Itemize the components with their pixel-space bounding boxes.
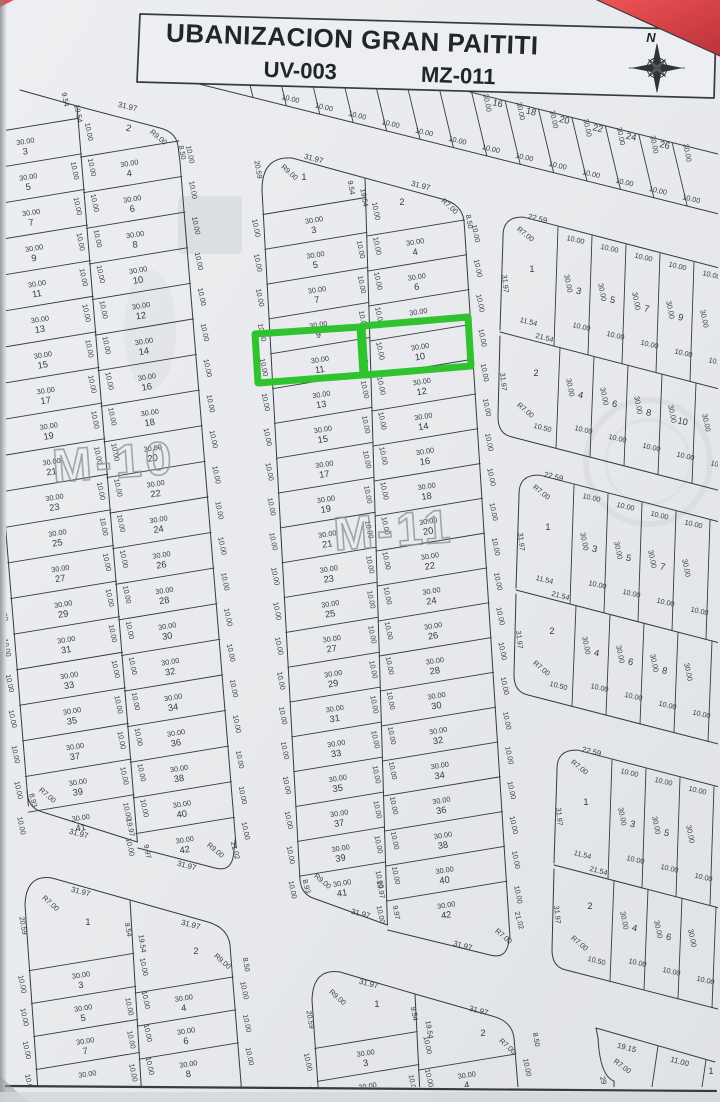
lot-number: 23: [323, 573, 335, 584]
lot-number: 1: [545, 522, 550, 532]
block-id-watermark: M-11: [332, 499, 456, 560]
lot-number: 10: [132, 274, 144, 285]
lot-number: 30: [430, 700, 442, 711]
lot-number: 1: [583, 797, 588, 807]
lot-number: 25: [324, 608, 336, 619]
lot-number: 27: [54, 573, 66, 584]
lot-number: 11: [31, 288, 42, 299]
lot-number: 2: [549, 626, 554, 636]
lot-number: 1: [529, 264, 534, 274]
lot-number: 16: [141, 381, 153, 392]
lot-number: 30: [161, 630, 173, 641]
lot-number: 14: [417, 421, 429, 432]
dimension-label: 31.97: [554, 807, 565, 826]
lot-number: 13: [34, 324, 46, 335]
lot-number: 33: [330, 748, 342, 759]
lot-number: 25: [51, 537, 63, 548]
lot-number: 31: [60, 644, 72, 655]
scanned-plat-photo: 10.0010.0010.0010.0010.0010.0010.0010.00…: [0, 0, 720, 1102]
lot-number: 42: [440, 909, 452, 920]
lot-number: 29: [57, 608, 69, 619]
lot-number: 18: [144, 417, 156, 428]
lot-number: 35: [66, 715, 78, 726]
lot-number: 39: [335, 852, 347, 863]
plat-map: 10.0010.0010.0010.0010.0010.0010.0010.00…: [0, 0, 720, 1102]
lot-number: 26: [155, 559, 167, 570]
lot-number: 27: [326, 643, 338, 654]
lot-number: 28: [158, 595, 170, 606]
lot-number: 1: [708, 1066, 713, 1076]
lot-number: 15: [317, 434, 329, 445]
lot-number: 41: [336, 887, 348, 898]
smudge: [178, 196, 242, 254]
uv-label: UV-003: [263, 57, 337, 85]
lot-number: 26: [427, 630, 439, 641]
lot-number: 22: [424, 560, 436, 571]
lot-number: 2: [587, 901, 592, 911]
dimension-label: 31.97: [516, 532, 527, 551]
lot-number: 19: [320, 503, 332, 514]
lot-number: 24: [153, 524, 165, 535]
lot-number: 29: [327, 678, 339, 689]
lot-number: 14: [138, 346, 150, 357]
lot-number: 33: [63, 680, 75, 691]
lot-number: 28: [429, 665, 441, 676]
lot-number: 2: [193, 946, 198, 956]
dimension-label: 31.97: [552, 905, 563, 924]
lot-number: 35: [332, 783, 344, 794]
lot-number: 15: [37, 359, 49, 370]
block-id-watermark: M-10: [51, 431, 177, 492]
lot-number: 11: [314, 364, 325, 375]
lot-number: 17: [318, 469, 330, 480]
lot-number: 21: [321, 538, 333, 549]
lot-number: 36: [435, 805, 447, 816]
lot-number: 38: [437, 840, 449, 851]
lot-number: 2: [533, 368, 538, 378]
lot-number: 12: [416, 386, 428, 397]
photo-bottom-margin: [0, 1092, 720, 1102]
lot-number: 32: [164, 666, 176, 677]
lot-number: 40: [176, 808, 188, 819]
lot-number: 12: [135, 310, 147, 321]
lot-number: 39: [72, 786, 84, 797]
compass-n-label: N: [646, 30, 656, 45]
photo-left-edge-shadow: [0, 0, 7, 1102]
lot-number: 37: [333, 818, 345, 829]
lot-number: 10: [414, 351, 426, 362]
dimension-label: 31.97: [500, 274, 511, 293]
lot-number: 34: [167, 702, 179, 713]
lot-number: 34: [434, 770, 446, 781]
lot-number: 1: [374, 999, 379, 1009]
lot-number: 17: [40, 395, 52, 406]
lot-number: 31: [329, 713, 341, 724]
lot-number: 22: [150, 488, 162, 499]
lot-number: 37: [69, 751, 81, 762]
lot-number: 13: [315, 399, 327, 410]
dimension-label: 31.97: [514, 630, 525, 649]
lot-number: 16: [419, 456, 431, 467]
lot-number: 36: [170, 737, 182, 748]
mz-label: MZ-011: [421, 62, 496, 90]
lot-number: 42: [179, 844, 191, 855]
lot-number: 38: [173, 773, 185, 784]
dimension-label: 31.97: [498, 372, 509, 391]
lot-number: 23: [49, 502, 61, 513]
lot-number: 40: [439, 874, 451, 885]
lot-number: 32: [432, 735, 444, 746]
lot-number: 1: [85, 917, 90, 927]
lot-number: 24: [426, 595, 438, 606]
lot-number: 2: [399, 197, 404, 207]
lot-number: 2: [480, 1028, 485, 1038]
lot-number: 1: [301, 172, 306, 182]
